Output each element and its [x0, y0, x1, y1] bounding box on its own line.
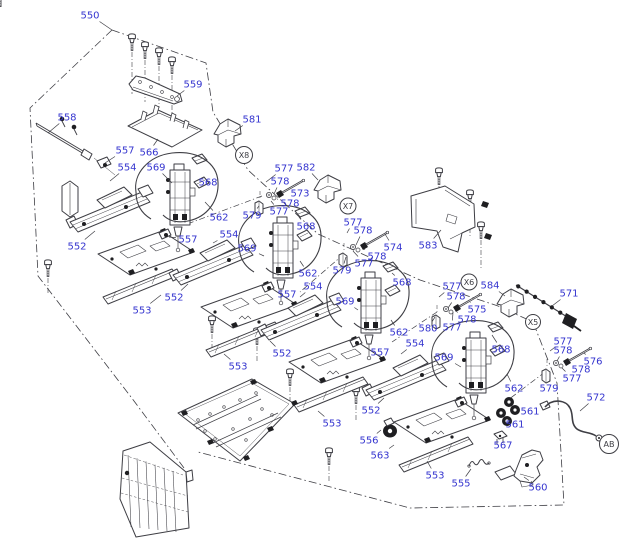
part-label-577: 577	[274, 164, 293, 175]
carriage-unit	[362, 321, 514, 472]
shoulder-screw	[129, 34, 136, 51]
callout-circle-x6: X6	[461, 274, 477, 290]
part-label-562: 562	[389, 328, 408, 339]
ribbed-frame	[120, 442, 193, 537]
part-label-558: 558	[57, 113, 76, 124]
callout-circle-x8: X8	[236, 147, 253, 164]
part-label-572: 572	[586, 393, 605, 404]
callout-circle-x5: X5	[526, 315, 541, 330]
part-label-578: 578	[446, 292, 465, 303]
part-label-578: 578	[270, 177, 289, 188]
part-label-568: 568	[198, 178, 217, 189]
shoulder-screw	[287, 369, 294, 386]
bracket-560	[495, 450, 543, 487]
callout-text-x6: X6	[464, 278, 475, 287]
part-label-569: 569	[237, 244, 256, 255]
part-label-560: 560	[528, 483, 547, 494]
callout-text-x5: X5	[528, 318, 539, 327]
part-label-579: 579	[539, 384, 558, 395]
part-label-584: 584	[480, 281, 499, 292]
part-label-571: 571	[559, 289, 578, 300]
part-label-554: 554	[405, 339, 424, 350]
part-label-562: 562	[298, 269, 317, 280]
part-label-550: 550	[80, 11, 99, 22]
diagram-canvas: 5505595585575665545695815685625525535575…	[0, 0, 640, 549]
part-label-561: 561	[520, 407, 539, 418]
sheet-bracket	[314, 175, 341, 203]
part-label-567: 567	[493, 441, 512, 452]
part-label-563: 563	[370, 451, 389, 462]
callout-text-x7: X7	[343, 202, 354, 211]
part-label-562: 562	[209, 213, 228, 224]
part-label-569: 569	[434, 353, 453, 364]
shoulder-screw	[436, 168, 443, 185]
spring-555	[468, 460, 490, 468]
part-label-553: 553	[132, 306, 151, 317]
part-label-562: 562	[504, 384, 523, 395]
part-label-556: 556	[359, 436, 378, 447]
part-label-555: 555	[451, 479, 470, 490]
part-label-569: 569	[146, 163, 165, 174]
exploded-parts-diagram: 5505595585575665545695815685625525535575…	[0, 0, 640, 549]
part-label-568: 568	[392, 278, 411, 289]
part-label-568: 568	[491, 345, 510, 356]
shoulder-screw	[142, 42, 149, 59]
part-label-552: 552	[361, 406, 380, 417]
callout-text-ab: AB	[604, 440, 615, 449]
section-boundary	[30, 30, 564, 508]
part-label-552: 552	[272, 349, 291, 360]
cable-572	[540, 401, 603, 441]
part-label-578: 578	[353, 226, 372, 237]
part-label-559: 559	[183, 80, 202, 91]
bar-559	[129, 76, 182, 104]
part-label-552: 552	[164, 293, 183, 304]
shoulder-screw	[169, 57, 176, 74]
shoulder-screw	[326, 448, 333, 465]
part-label-561: 561	[505, 420, 524, 431]
part-label-577: 577	[562, 374, 581, 385]
part-label-553: 553	[322, 419, 341, 430]
shoulder-screw	[0, 0, 3, 7]
part-label-583: 583	[418, 241, 437, 252]
carriage-unit	[66, 153, 218, 304]
part-label-577: 577	[442, 323, 461, 334]
part-label-557: 557	[178, 235, 197, 246]
part-label-577: 577	[269, 207, 288, 218]
callout-circle-x7: X7	[340, 198, 356, 214]
roller-556	[383, 418, 397, 438]
roller-pair-561	[504, 397, 520, 415]
part-label-568: 568	[296, 222, 315, 233]
part-label-581: 581	[242, 115, 261, 126]
part-label-578: 578	[553, 346, 572, 357]
part-label-554: 554	[117, 163, 136, 174]
plate-566	[128, 105, 202, 147]
part-label-554: 554	[303, 282, 322, 293]
callout-circle-ab: AB	[600, 435, 619, 454]
part-label-557: 557	[370, 348, 389, 359]
callout-text-x8: X8	[239, 151, 250, 160]
shoulder-screw	[156, 48, 163, 65]
base-plate	[178, 379, 298, 461]
shoulder-screw	[478, 222, 485, 239]
part-label-577: 577	[354, 259, 373, 270]
part-label-579: 579	[332, 266, 351, 277]
part-label-557: 557	[115, 146, 134, 157]
part-label-557: 557	[277, 290, 296, 301]
part-label-580: 580	[418, 324, 437, 335]
shoulder-screw	[209, 316, 216, 333]
sheet-bracket	[214, 119, 241, 147]
part-label-554: 554	[219, 230, 238, 241]
part-label-566: 566	[139, 148, 158, 159]
part-label-553: 553	[228, 362, 247, 373]
part-label-552: 552	[67, 242, 86, 253]
part-label-569: 569	[335, 297, 354, 308]
shoulder-screw	[45, 260, 52, 277]
part-label-553: 553	[425, 471, 444, 482]
part-label-579: 579	[242, 211, 261, 222]
part-label-582: 582	[296, 163, 315, 174]
